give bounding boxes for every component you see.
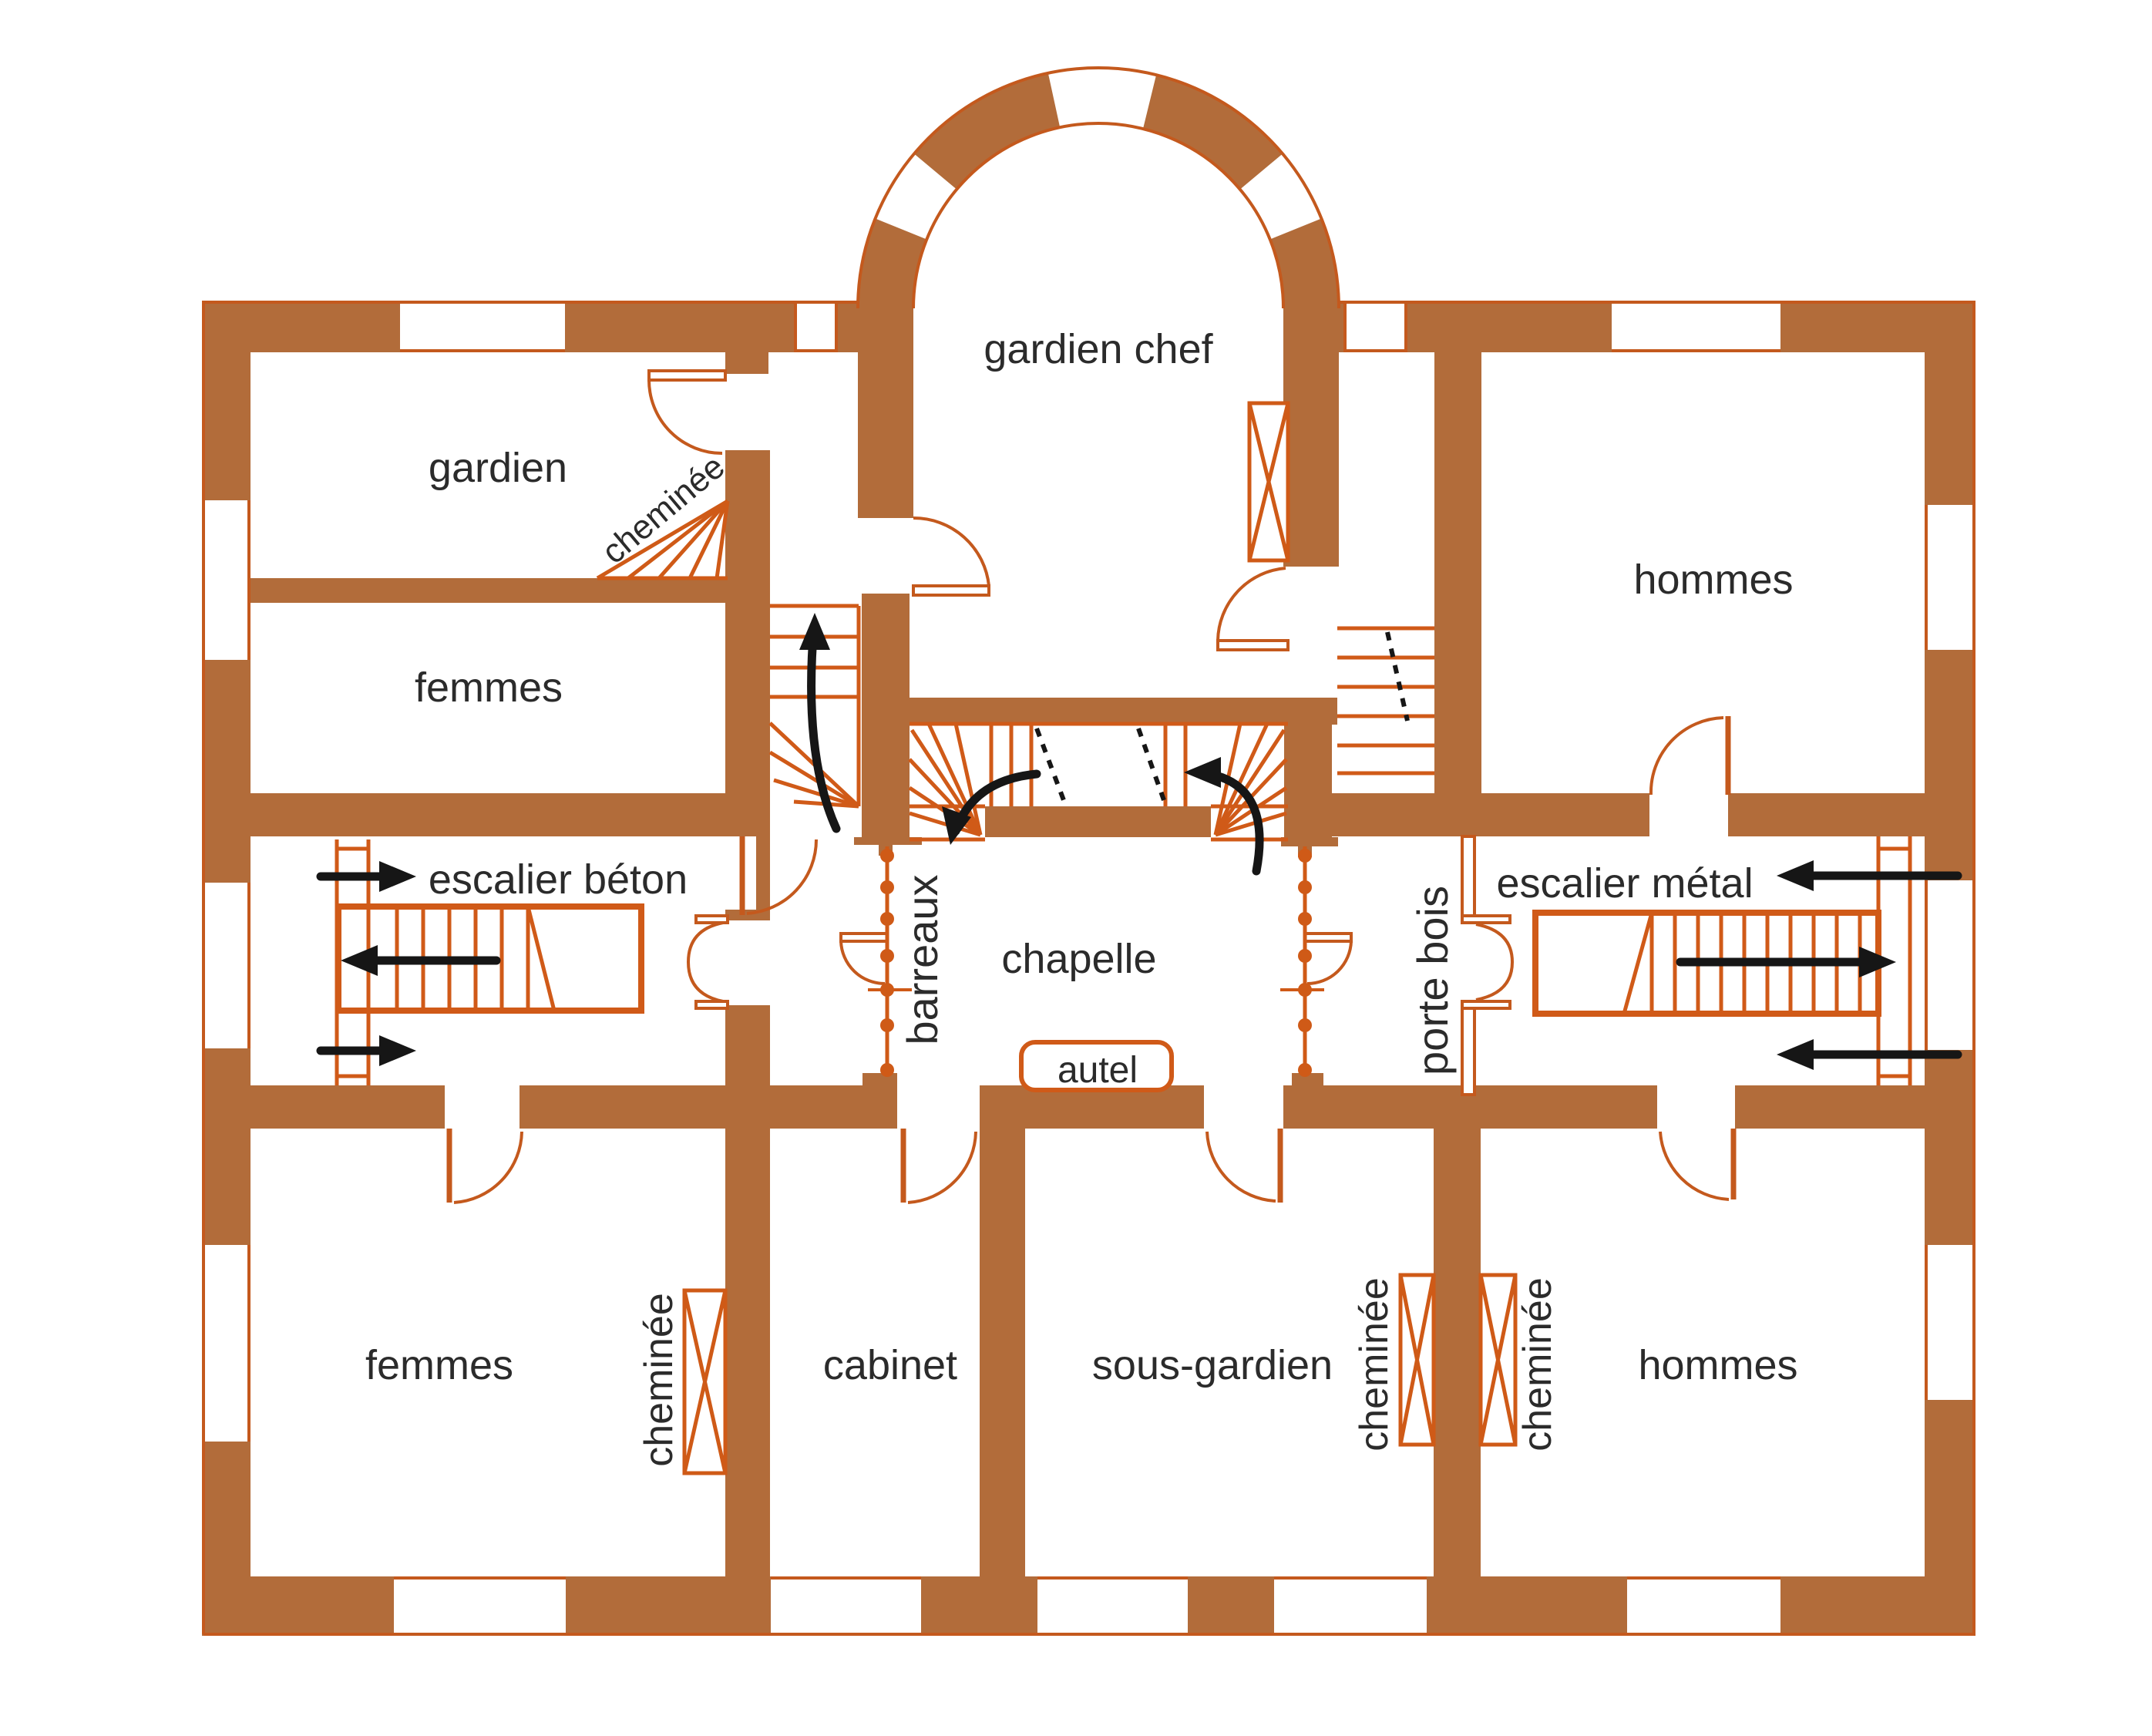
svg-text:escalier métal: escalier métal [1496,860,1753,907]
svg-text:hommes: hommes [1638,1342,1797,1388]
svg-text:chapelle: chapelle [1001,936,1156,982]
svg-text:hommes: hommes [1633,557,1793,603]
svg-text:cheminée: cheminée [1515,1277,1560,1451]
svg-text:sous-gardien: sous-gardien [1092,1342,1333,1388]
svg-text:cheminée: cheminée [637,1293,681,1466]
svg-text:barreaux: barreaux [898,874,947,1045]
svg-text:gardien chef: gardien chef [984,326,1213,372]
svg-text:autel: autel [1058,1050,1138,1091]
svg-text:escalier béton: escalier béton [429,856,688,903]
svg-text:femmes: femmes [415,664,563,711]
svg-text:gardien: gardien [429,445,567,491]
svg-text:femmes: femmes [365,1342,513,1388]
svg-text:cabinet: cabinet [823,1342,957,1388]
svg-text:porte bois: porte bois [1408,886,1457,1075]
svg-text:cheminée: cheminée [1352,1277,1397,1451]
